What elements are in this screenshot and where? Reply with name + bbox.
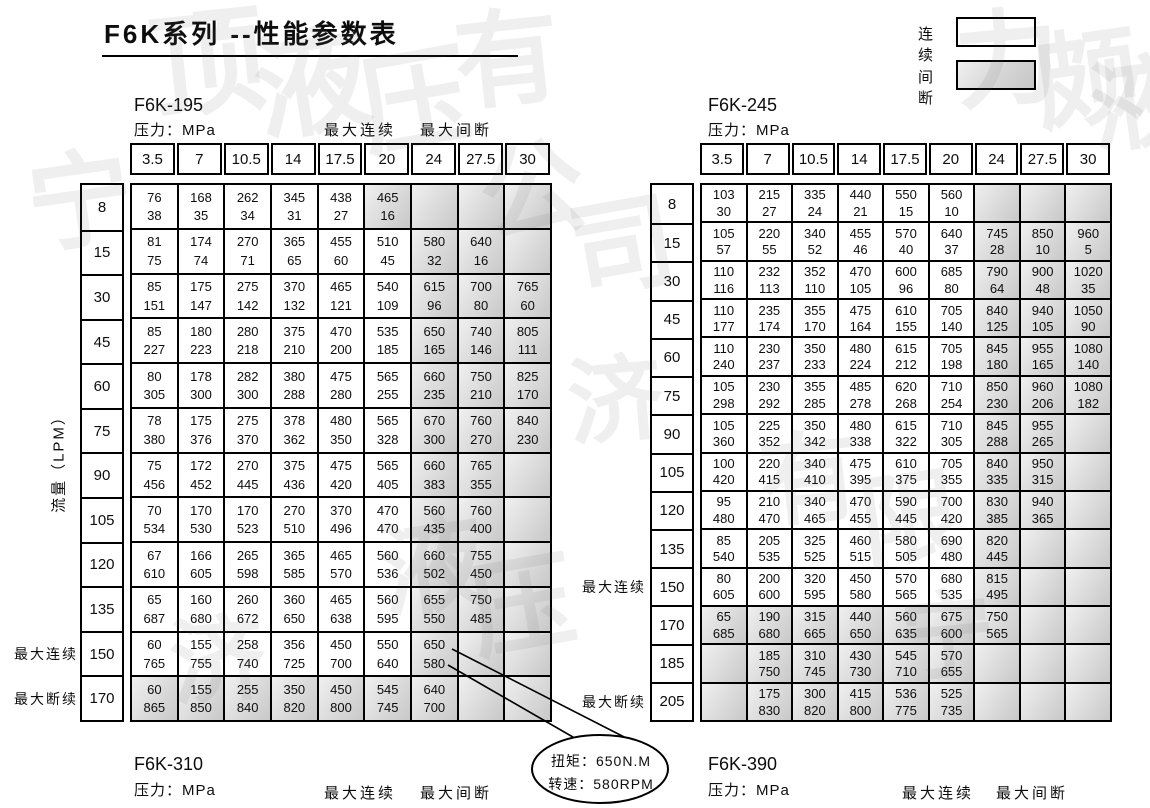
data-cell [504, 587, 551, 632]
cell-bottom-value: 254 [941, 397, 963, 410]
cell-bottom-value: 255 [377, 388, 399, 401]
cell-top-value: 355 [804, 380, 826, 393]
data-cell: 450580 [838, 568, 884, 606]
cell-bottom-value: 110 [805, 282, 826, 295]
callout-text: 扭矩：650N.M 转速：580RPM [534, 748, 668, 797]
cell-bottom-value: 525 [804, 550, 826, 563]
data-grid: 1033021527335244402155015560101055722055… [700, 183, 1112, 722]
data-cell: 560435 [411, 497, 458, 542]
pressure-header-cell: 3.5 [700, 143, 744, 175]
cell-bottom-value: 65 [287, 254, 301, 267]
cell-bottom-value: 523 [237, 522, 259, 535]
cell-bottom-value: 227 [143, 343, 165, 356]
cell-bottom-value: 164 [850, 320, 872, 333]
cell-top-value: 190 [758, 610, 780, 623]
data-cell: 8175 [131, 229, 178, 274]
cell-bottom-value: 362 [283, 433, 305, 446]
data-cell: 175376 [178, 408, 225, 453]
cell-top-value: 78 [147, 414, 161, 427]
data-cell: 282300 [224, 363, 271, 408]
pressure-header-cell: 30 [505, 143, 550, 175]
data-cell: 470105 [838, 261, 884, 299]
cell-top-value: 172 [190, 459, 212, 472]
cell-bottom-value: 32 [427, 254, 441, 267]
data-cell: 460515 [838, 529, 884, 567]
cell-top-value: 840 [986, 457, 1008, 470]
cell-top-value: 375 [283, 459, 305, 472]
data-cell: 255840 [224, 676, 271, 721]
data-cell: 55015 [883, 184, 929, 222]
data-cell: 825170 [504, 363, 551, 408]
flow-row-label: 15 [82, 230, 122, 275]
cell-bottom-value: 285 [804, 397, 826, 410]
data-cell: 79064 [974, 261, 1020, 299]
flow-label-column: 8153045607590105120135150170 [80, 183, 124, 722]
watermark-char: 有 [450, 3, 565, 118]
data-cell: 170523 [224, 497, 271, 542]
cell-bottom-value: 328 [377, 433, 399, 446]
cell-top-value: 615 [895, 419, 917, 432]
cell-top-value: 85 [717, 534, 731, 547]
cell-bottom-value: 665 [804, 627, 826, 640]
cell-bottom-value: 380 [143, 433, 165, 446]
cell-top-value: 65 [717, 610, 731, 623]
cell-bottom-value: 415 [758, 473, 780, 486]
cell-bottom-value: 165 [1032, 358, 1054, 371]
cell-top-value: 540 [377, 280, 399, 293]
cell-top-value: 85 [147, 280, 161, 293]
data-cell: 70534 [131, 497, 178, 542]
flow-row-label: 60 [652, 338, 692, 376]
cell-bottom-value: 60 [334, 254, 348, 267]
cell-top-value: 60 [147, 683, 161, 696]
cell-top-value: 840 [517, 414, 539, 427]
max-continuous-header: 最大连续 [324, 119, 396, 140]
data-cell [411, 184, 458, 229]
cell-top-value: 80 [147, 370, 161, 383]
cell-bottom-value: 800 [850, 704, 872, 717]
pressure-header-cell: 20 [929, 143, 973, 175]
data-cell: 375436 [271, 453, 318, 498]
cell-top-value: 275 [237, 414, 259, 427]
data-cell: 570565 [883, 568, 929, 606]
cell-top-value: 355 [804, 304, 826, 317]
flow-row-label: 170 [652, 605, 692, 643]
cell-bottom-value: 80 [944, 282, 958, 295]
data-cell [1065, 568, 1111, 606]
data-cell: 475164 [838, 299, 884, 337]
cell-bottom-value: 410 [804, 473, 826, 486]
data-cell: 60865 [131, 676, 178, 721]
cell-bottom-value: 445 [237, 478, 259, 491]
cell-top-value: 850 [986, 380, 1008, 393]
data-cell: 620268 [883, 376, 929, 414]
cell-bottom-value: 230 [986, 397, 1008, 410]
cell-top-value: 175 [758, 687, 780, 700]
cell-bottom-value: 40 [899, 243, 913, 256]
cell-top-value: 230 [758, 380, 780, 393]
data-cell: 232113 [747, 261, 793, 299]
cell-top-value: 470 [330, 325, 352, 338]
data-cell: 680535 [929, 568, 975, 606]
data-cell: 560536 [364, 542, 411, 587]
cell-top-value: 166 [190, 549, 212, 562]
cell-bottom-value: 710 [895, 665, 917, 678]
data-cell: 535185 [364, 318, 411, 363]
cell-top-value: 545 [377, 683, 399, 696]
data-cell [1020, 184, 1066, 222]
cell-bottom-value: 360 [713, 435, 735, 448]
data-cell: 275142 [224, 274, 271, 319]
cell-bottom-value: 170 [517, 388, 539, 401]
cell-bottom-value: 765 [143, 657, 165, 670]
cell-bottom-value: 585 [283, 567, 305, 580]
cell-top-value: 1080 [1074, 380, 1103, 393]
cell-bottom-value: 635 [895, 627, 917, 640]
cell-bottom-value: 300 [237, 388, 259, 401]
cell-top-value: 565 [377, 370, 399, 383]
cell-top-value: 850 [1032, 227, 1054, 240]
cell-bottom-value: 435 [423, 522, 445, 535]
max-intermittent-side-label: 最大断续 [574, 692, 646, 712]
data-cell: 705355 [929, 453, 975, 491]
pressure-header-cell: 7 [177, 143, 222, 175]
cell-bottom-value: 212 [895, 358, 917, 371]
cell-bottom-value: 16 [474, 254, 488, 267]
data-cell [1065, 683, 1111, 721]
cell-top-value: 350 [804, 342, 826, 355]
flow-row-label: 205 [652, 682, 692, 720]
data-cell: 205535 [747, 529, 793, 567]
data-cell: 310745 [792, 644, 838, 682]
data-cell: 352110 [792, 261, 838, 299]
cell-top-value: 110 [713, 342, 734, 355]
data-cell: 365585 [271, 542, 318, 587]
data-cell: 550640 [364, 632, 411, 677]
cell-bottom-value: 420 [330, 478, 352, 491]
data-cell: 375210 [271, 318, 318, 363]
data-cell: 46516 [364, 184, 411, 229]
data-cell: 43827 [318, 184, 365, 229]
cell-top-value: 710 [941, 380, 963, 393]
cell-top-value: 750 [470, 370, 492, 383]
data-cell: 470470 [364, 497, 411, 542]
cell-bottom-value: 740 [237, 657, 259, 670]
cell-bottom-value: 147 [190, 299, 212, 312]
cell-bottom-value: 595 [804, 588, 826, 601]
cell-bottom-value: 235 [423, 388, 445, 401]
cell-top-value: 255 [237, 683, 259, 696]
cell-bottom-value: 534 [143, 522, 165, 535]
cell-top-value: 475 [330, 370, 352, 383]
cell-bottom-value: 580 [850, 588, 872, 601]
cell-top-value: 745 [986, 227, 1008, 240]
pressure-header-cell: 30 [1066, 143, 1110, 175]
cell-top-value: 360 [283, 593, 305, 606]
max-intermittent-header: 最大间断 [420, 119, 492, 140]
flow-row-label: 135 [82, 586, 122, 631]
data-cell: 470455 [838, 491, 884, 529]
cell-bottom-value: 237 [758, 358, 780, 371]
cell-top-value: 465 [377, 191, 399, 204]
cell-top-value: 660 [423, 549, 445, 562]
data-cell: 690480 [929, 529, 975, 567]
cell-bottom-value: 292 [758, 397, 780, 410]
data-cell: 480224 [838, 337, 884, 375]
cell-top-value: 105 [713, 227, 735, 240]
cell-bottom-value: 75 [147, 254, 161, 267]
cell-bottom-value: 456 [143, 478, 165, 491]
flow-label-column: 8153045607590105120135150170185205 [650, 183, 694, 722]
cell-bottom-value: 598 [237, 567, 259, 580]
cell-top-value: 270 [237, 459, 259, 472]
cell-top-value: 640 [941, 227, 963, 240]
data-cell: 350342 [792, 414, 838, 452]
pressure-header-row: 3.5710.51417.5202427.530 [700, 143, 1110, 175]
data-cell: 540109 [364, 274, 411, 319]
cell-bottom-value: 383 [423, 478, 445, 491]
cell-bottom-value: 820 [804, 704, 826, 717]
title-underline [102, 55, 518, 57]
max-intermittent-header: 最大间断 [996, 782, 1068, 803]
cell-top-value: 600 [895, 265, 917, 278]
data-cell: 820445 [974, 529, 1020, 567]
cell-top-value: 560 [941, 188, 963, 201]
cell-bottom-value: 218 [237, 343, 259, 356]
cell-bottom-value: 376 [190, 433, 212, 446]
data-cell: 9605 [1065, 222, 1111, 260]
data-cell: 378362 [271, 408, 318, 453]
cell-bottom-value: 650 [283, 612, 305, 625]
flow-row-label: 30 [652, 261, 692, 299]
cell-bottom-value: 233 [804, 358, 826, 371]
flow-row-label: 150 [652, 567, 692, 605]
cell-top-value: 620 [895, 380, 917, 393]
data-cell: 765355 [458, 453, 505, 498]
cell-top-value: 790 [986, 265, 1008, 278]
cell-top-value: 170 [237, 504, 259, 517]
data-cell: 705198 [929, 337, 975, 375]
data-cell: 640700 [411, 676, 458, 721]
cell-bottom-value: 223 [190, 343, 212, 356]
cell-top-value: 378 [283, 414, 305, 427]
cell-top-value: 1080 [1074, 342, 1103, 355]
cell-top-value: 370 [283, 280, 305, 293]
cell-bottom-value: 240 [713, 358, 735, 371]
data-cell: 230237 [747, 337, 793, 375]
cell-top-value: 75 [147, 459, 161, 472]
cell-bottom-value: 502 [423, 567, 445, 580]
cell-top-value: 565 [377, 459, 399, 472]
data-cell: 805111 [504, 318, 551, 363]
cell-top-value: 1020 [1074, 265, 1103, 278]
cell-top-value: 610 [895, 457, 917, 470]
data-cell: 225352 [747, 414, 793, 452]
cell-bottom-value: 355 [941, 473, 963, 486]
cell-top-value: 262 [237, 191, 259, 204]
cell-bottom-value: 180 [986, 358, 1008, 371]
data-grid: 7638168352623434531438274651681751747427… [130, 183, 552, 722]
cell-bottom-value: 800 [330, 701, 352, 714]
data-cell: 180223 [178, 318, 225, 363]
cell-bottom-value: 840 [237, 701, 259, 714]
cell-bottom-value: 570 [330, 567, 352, 580]
pressure-header-cell: 24 [411, 143, 456, 175]
data-cell: 740146 [458, 318, 505, 363]
cell-bottom-value: 37 [944, 243, 958, 256]
cell-top-value: 705 [941, 457, 963, 470]
cell-top-value: 232 [758, 265, 780, 278]
cell-top-value: 450 [330, 683, 352, 696]
cell-bottom-value: 865 [143, 701, 165, 714]
cell-bottom-value: 288 [986, 435, 1008, 448]
cell-bottom-value: 116 [713, 282, 734, 295]
cell-top-value: 820 [986, 534, 1008, 547]
cell-top-value: 700 [941, 495, 963, 508]
data-cell [504, 676, 551, 721]
cell-bottom-value: 338 [850, 435, 872, 448]
cell-bottom-value: 278 [850, 397, 872, 410]
cell-bottom-value: 28 [990, 243, 1004, 256]
cell-bottom-value: 165 [423, 343, 445, 356]
data-cell: 440650 [838, 606, 884, 644]
page: 顶液压有力颇液宁公司济液压有限济宁 F6K系列 --性能参数表 连续 间断 F6… [0, 0, 1150, 808]
cell-bottom-value: 550 [423, 612, 445, 625]
data-cell: 100420 [701, 453, 747, 491]
flow-row-label: 105 [82, 497, 122, 542]
cell-top-value: 760 [470, 414, 492, 427]
watermark-char: 颇 [1028, 21, 1147, 140]
cell-top-value: 340 [804, 457, 826, 470]
data-cell: 85151 [131, 274, 178, 319]
pressure-unit-label: 压力：MPa [708, 779, 790, 800]
cell-bottom-value: 224 [850, 358, 872, 371]
cell-top-value: 580 [895, 534, 917, 547]
data-cell: 480350 [318, 408, 365, 453]
pressure-unit-label: 压力：MPa [134, 119, 216, 140]
cell-bottom-value: 121 [330, 299, 352, 312]
max-continuous-side-label: 最大连续 [6, 644, 78, 664]
cell-top-value: 765 [517, 280, 539, 293]
data-cell: 45560 [318, 229, 365, 274]
data-cell: 235174 [747, 299, 793, 337]
data-cell: 840335 [974, 453, 1020, 491]
data-cell: 210470 [747, 491, 793, 529]
data-cell [1065, 491, 1111, 529]
cell-bottom-value: 540 [713, 550, 735, 563]
pressure-header-cell: 3.5 [130, 143, 175, 175]
data-cell: 110116 [701, 261, 747, 299]
data-cell: 85010 [1020, 222, 1066, 260]
cell-bottom-value: 352 [758, 435, 780, 448]
cell-bottom-value: 182 [1077, 397, 1099, 410]
cell-bottom-value: 230 [517, 433, 539, 446]
data-cell: 470200 [318, 318, 365, 363]
cell-bottom-value: 315 [1032, 473, 1054, 486]
flow-row-label: 150 [82, 631, 122, 676]
cell-top-value: 260 [237, 593, 259, 606]
pressure-header-cell: 17.5 [883, 143, 927, 175]
data-cell: 840230 [504, 408, 551, 453]
data-cell [1020, 644, 1066, 682]
cell-bottom-value: 638 [330, 612, 352, 625]
data-cell [504, 542, 551, 587]
cell-bottom-value: 300 [190, 388, 212, 401]
data-cell: 76560 [504, 274, 551, 319]
cell-bottom-value: 74 [194, 254, 208, 267]
cell-top-value: 105 [713, 380, 735, 393]
cell-bottom-value: 298 [713, 397, 735, 410]
cell-bottom-value: 452 [190, 478, 212, 491]
cell-top-value: 180 [190, 325, 212, 338]
data-cell: 355170 [792, 299, 838, 337]
cell-top-value: 510 [377, 235, 399, 248]
cell-top-value: 340 [804, 227, 826, 240]
data-cell: 67610 [131, 542, 178, 587]
flow-row-label: 135 [652, 529, 692, 567]
cell-bottom-value: 370 [237, 433, 259, 446]
cell-top-value: 200 [758, 572, 780, 585]
pressure-header-row: 3.5710.51417.5202427.530 [130, 143, 550, 175]
flow-row-label: 60 [82, 363, 122, 408]
table-name: F6K-195 [134, 95, 203, 116]
cell-top-value: 210 [758, 495, 780, 508]
cell-bottom-value: 580 [423, 657, 445, 670]
data-cell: 465638 [318, 587, 365, 632]
data-cell: 64016 [458, 229, 505, 274]
cell-bottom-value: 24 [808, 205, 822, 218]
cell-top-value: 470 [377, 504, 399, 517]
cell-bottom-value: 71 [240, 254, 254, 267]
pressure-header-cell: 20 [364, 143, 409, 175]
cell-top-value: 350 [283, 683, 305, 696]
cell-bottom-value: 151 [143, 299, 165, 312]
cell-bottom-value: 600 [758, 588, 780, 601]
data-cell: 660502 [411, 542, 458, 587]
cell-bottom-value: 450 [470, 567, 492, 580]
cell-bottom-value: 735 [941, 704, 963, 717]
data-cell: 955165 [1020, 337, 1066, 375]
data-cell: 430730 [838, 644, 884, 682]
cell-bottom-value: 140 [941, 320, 963, 333]
cell-bottom-value: 105 [1032, 320, 1054, 333]
data-cell: 370132 [271, 274, 318, 319]
data-cell: 258740 [224, 632, 271, 677]
data-cell [1065, 453, 1111, 491]
data-cell: 17474 [178, 229, 225, 274]
cell-top-value: 280 [237, 325, 259, 338]
cell-top-value: 660 [423, 459, 445, 472]
cell-top-value: 690 [941, 534, 963, 547]
cell-top-value: 570 [895, 572, 917, 585]
data-cell: 940105 [1020, 299, 1066, 337]
cell-bottom-value: 465 [804, 512, 826, 525]
data-cell [458, 676, 505, 721]
flow-row-label: 75 [652, 376, 692, 414]
cell-bottom-value: 830 [758, 704, 780, 717]
data-cell: 155755 [178, 632, 225, 677]
cell-bottom-value: 80 [474, 299, 488, 312]
cell-top-value: 282 [237, 370, 259, 383]
data-cell: 580505 [883, 529, 929, 567]
cell-bottom-value: 730 [850, 665, 872, 678]
data-cell: 175147 [178, 274, 225, 319]
data-cell: 760400 [458, 497, 505, 542]
data-cell: 710254 [929, 376, 975, 414]
cell-top-value: 440 [850, 610, 872, 623]
cell-top-value: 840 [986, 304, 1008, 317]
cell-top-value: 950 [1032, 457, 1054, 470]
